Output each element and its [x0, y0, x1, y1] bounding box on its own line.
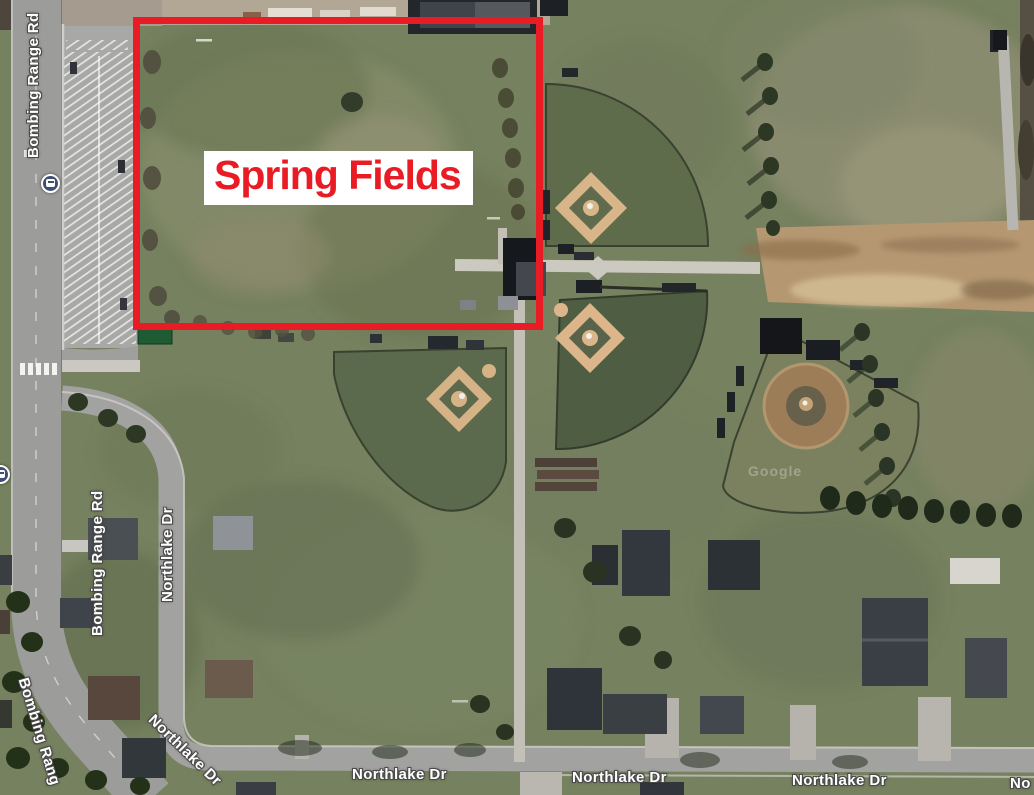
- spring-fields-label: Spring Fields: [204, 151, 473, 205]
- parking-lot: [62, 26, 138, 369]
- bus-glyph: [0, 470, 5, 478]
- bus-stop-icon[interactable]: [41, 174, 60, 193]
- bus-glyph: [46, 179, 55, 187]
- map-canvas[interactable]: Spring Fields Bombing Range Rd Bombing R…: [0, 0, 1034, 795]
